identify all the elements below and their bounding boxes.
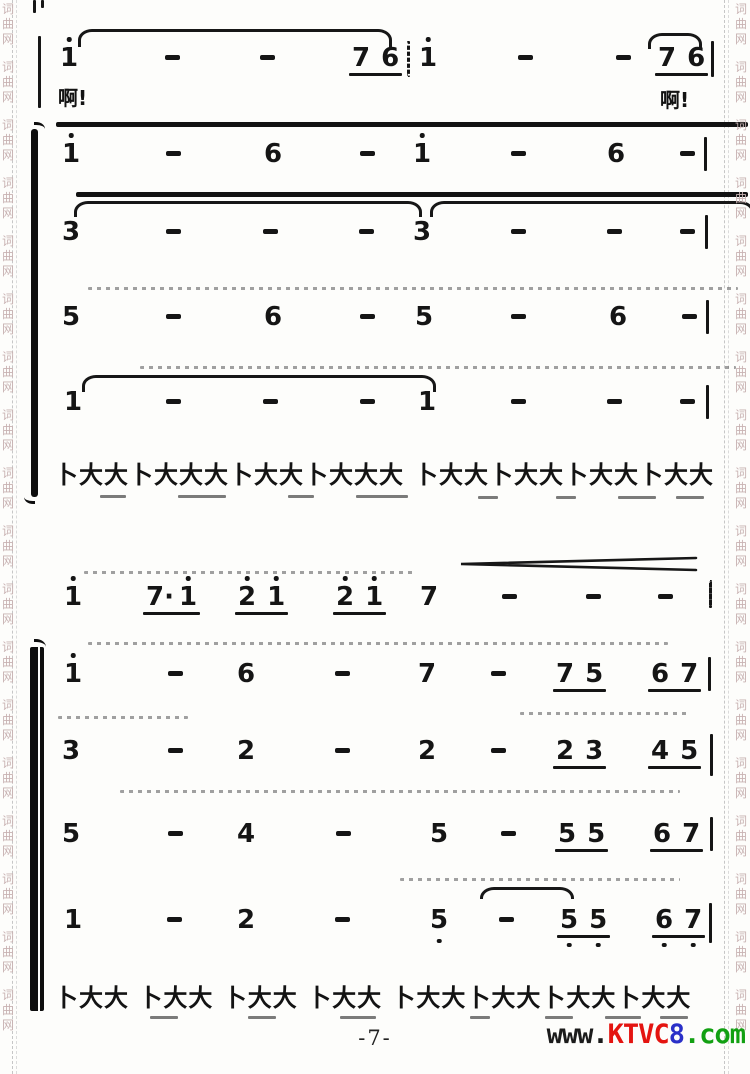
low-octave-dot bbox=[662, 943, 667, 948]
beam-underline bbox=[557, 935, 610, 938]
watermark-group: 词曲网 bbox=[734, 292, 748, 337]
watermark-group: 词曲网 bbox=[1, 60, 15, 105]
watermark-group: 词曲网 bbox=[1, 234, 15, 279]
extension-dash bbox=[680, 399, 695, 404]
extension-dash bbox=[511, 399, 526, 404]
extension-dash bbox=[260, 55, 275, 60]
barline bbox=[711, 41, 714, 77]
high-octave-dot bbox=[372, 576, 377, 581]
site-logo-segment: KTVC bbox=[608, 1019, 669, 1050]
watermark-group: 词曲网 bbox=[734, 524, 748, 569]
note-digit: 6 bbox=[264, 140, 282, 168]
note-group: 76 bbox=[352, 44, 399, 72]
extension-dash bbox=[263, 229, 278, 234]
note-group: 55 bbox=[558, 820, 605, 848]
extension-dash bbox=[511, 229, 526, 234]
extension-dash bbox=[168, 671, 183, 676]
extension-dash bbox=[518, 55, 533, 60]
extension-dash bbox=[263, 399, 278, 404]
notation-row-s2-v4: 1255567 bbox=[0, 906, 750, 936]
high-octave-dot bbox=[67, 37, 72, 42]
watermark-group: 词曲网 bbox=[734, 698, 748, 743]
extension-dash bbox=[499, 917, 514, 922]
extension-dash bbox=[491, 748, 506, 753]
note-digit: 5 bbox=[62, 303, 80, 331]
notation-row-s1-v2: 33 bbox=[0, 218, 750, 248]
watermark-column: 词曲网词曲网词曲网词曲网词曲网词曲网词曲网词曲网词曲网词曲网词曲网词曲网词曲网词… bbox=[1, 2, 15, 1046]
note-digit: 5 bbox=[430, 906, 448, 934]
extension-dash bbox=[167, 917, 182, 922]
note-digit: 4 bbox=[237, 820, 255, 848]
beam-underline bbox=[655, 73, 708, 76]
lyric-underline-dash bbox=[340, 1016, 376, 1019]
watermark-group: 词曲网 bbox=[734, 872, 748, 917]
note-group: 67 bbox=[653, 820, 700, 848]
extension-dash bbox=[360, 399, 375, 404]
high-octave-dot bbox=[69, 133, 74, 138]
watermark-group: 词曲网 bbox=[1, 524, 15, 569]
watermark-group: 词曲网 bbox=[1, 350, 15, 395]
watermark-group: 词曲网 bbox=[1, 930, 15, 975]
tie-line bbox=[76, 192, 748, 197]
lyric-underline-dash bbox=[150, 1016, 178, 1019]
extension-dash bbox=[586, 594, 601, 599]
note-digit: 3 bbox=[413, 218, 431, 246]
extension-dash bbox=[335, 671, 350, 676]
note-digit: 1 bbox=[64, 583, 82, 611]
watermark-group: 词曲网 bbox=[734, 118, 748, 163]
watermark-group: 词曲网 bbox=[1, 698, 15, 743]
extension-dash bbox=[165, 55, 180, 60]
note-digit: 6 bbox=[609, 303, 627, 331]
note-group: 21 bbox=[238, 583, 285, 611]
lyric-underline-dash bbox=[100, 495, 126, 498]
high-octave-dot bbox=[420, 133, 425, 138]
extension-dash bbox=[616, 55, 631, 60]
barline bbox=[706, 385, 709, 419]
note-digit: 6 bbox=[607, 140, 625, 168]
lyric-underline-dash bbox=[248, 1016, 276, 1019]
note-digit: 1 bbox=[64, 388, 82, 416]
lyric-underline-dash bbox=[470, 1016, 490, 1019]
scan-noise-line bbox=[58, 716, 188, 719]
note-digit: 5 bbox=[62, 820, 80, 848]
low-octave-dot bbox=[567, 943, 572, 948]
barline bbox=[708, 657, 711, 691]
barline bbox=[709, 580, 712, 608]
system-brace bbox=[31, 129, 38, 497]
tie-line bbox=[56, 122, 748, 127]
high-octave-dot bbox=[186, 576, 191, 581]
extension-dash bbox=[680, 229, 695, 234]
beam-underline bbox=[553, 766, 606, 769]
extension-dash bbox=[501, 831, 516, 836]
lyric-underline-dash bbox=[618, 496, 656, 499]
extension-dash bbox=[682, 314, 697, 319]
slur-tie bbox=[648, 33, 702, 49]
high-octave-dot bbox=[71, 653, 76, 658]
beam-underline bbox=[143, 612, 200, 615]
note-digit: 1 bbox=[64, 906, 82, 934]
note-digit: 6 bbox=[264, 303, 282, 331]
site-logo-segment: www. bbox=[547, 1019, 608, 1050]
note-group: 21 bbox=[336, 583, 383, 611]
lyric-row1-part1: 卜大大卜大大大卜大大卜大大大 bbox=[54, 462, 404, 488]
extension-dash bbox=[168, 748, 183, 753]
watermark-group: 词曲网 bbox=[1, 118, 15, 163]
scan-noise-line bbox=[120, 790, 680, 793]
notation-row-mid-voice: 17·121217 bbox=[0, 583, 750, 613]
extension-dash bbox=[166, 151, 181, 156]
extension-dash bbox=[360, 314, 375, 319]
note-group: 7·1 bbox=[146, 583, 197, 611]
extension-dash bbox=[168, 831, 183, 836]
note-digit: 3 bbox=[62, 218, 80, 246]
lyric-underline-dash bbox=[676, 496, 704, 499]
system-brace bbox=[30, 647, 44, 1011]
watermark-group: 词曲网 bbox=[1, 176, 15, 221]
extension-dash bbox=[680, 151, 695, 156]
extension-dash bbox=[166, 314, 181, 319]
barline bbox=[38, 36, 41, 108]
beam-underline bbox=[648, 766, 701, 769]
note-digit: 1 bbox=[62, 140, 80, 168]
barline bbox=[407, 41, 410, 77]
extension-dash bbox=[607, 229, 622, 234]
slur-tie bbox=[82, 375, 436, 392]
lyric-ah-left: 啊! bbox=[58, 85, 87, 111]
watermark-column: 词曲网词曲网词曲网词曲网词曲网词曲网词曲网词曲网词曲网词曲网词曲网词曲网词曲网词… bbox=[734, 2, 748, 1046]
scan-noise-line bbox=[88, 642, 668, 645]
barline bbox=[41, 0, 44, 8]
extension-dash bbox=[607, 399, 622, 404]
note-digit: 2 bbox=[418, 737, 436, 765]
watermark-group: 词曲网 bbox=[734, 814, 748, 859]
watermark-group: 词曲网 bbox=[734, 60, 748, 105]
watermark-group: 词曲网 bbox=[1, 756, 15, 801]
note-digit: 2 bbox=[237, 737, 255, 765]
note-digit: 1 bbox=[413, 140, 431, 168]
extension-dash bbox=[166, 399, 181, 404]
notation-row-s1-v4: 11 bbox=[0, 388, 750, 418]
sheet-music-page: 17617616163356561117·1212171677567322234… bbox=[0, 0, 750, 1074]
barline bbox=[706, 300, 709, 334]
high-octave-dot bbox=[245, 576, 250, 581]
beam-underline bbox=[333, 612, 386, 615]
extension-dash bbox=[491, 671, 506, 676]
watermark-group: 词曲网 bbox=[734, 756, 748, 801]
notation-row-tail-voice: 176176 bbox=[0, 44, 750, 74]
lyric-underline-dash bbox=[288, 495, 314, 498]
watermark-group: 词曲网 bbox=[1, 872, 15, 917]
barline bbox=[710, 734, 713, 776]
lyric-row2: 卜大大 卜大大 卜大大 卜大大 卜大大卜大大卜大大卜大大 bbox=[54, 985, 691, 1011]
beam-underline bbox=[555, 849, 608, 852]
barline bbox=[704, 137, 707, 171]
notation-row-s1-v1: 1616 bbox=[0, 140, 750, 170]
barline bbox=[710, 817, 713, 851]
watermark-group: 词曲网 bbox=[1, 408, 15, 453]
notation-row-s2-v3: 5455567 bbox=[0, 820, 750, 850]
slur-tie bbox=[78, 29, 392, 47]
watermark-group: 词曲网 bbox=[734, 408, 748, 453]
lyric-row1-part2: 卜大大卜大大卜大大卜大大 bbox=[414, 462, 714, 488]
slur-tie bbox=[74, 201, 422, 217]
watermark-group: 词曲网 bbox=[1, 814, 15, 859]
watermark-group: 词曲网 bbox=[734, 350, 748, 395]
watermark-group: 词曲网 bbox=[1, 2, 15, 47]
note-digit: 7 bbox=[418, 660, 436, 688]
high-octave-dot bbox=[426, 37, 431, 42]
scan-noise-line bbox=[400, 878, 680, 881]
high-octave-dot bbox=[343, 576, 348, 581]
high-octave-dot bbox=[71, 576, 76, 581]
note-group: 23 bbox=[556, 737, 603, 765]
extension-dash bbox=[359, 229, 374, 234]
extension-dash bbox=[658, 594, 673, 599]
note-digit: 7 bbox=[420, 583, 438, 611]
extension-dash bbox=[336, 831, 351, 836]
watermark-group: 词曲网 bbox=[734, 2, 748, 47]
beam-underline bbox=[650, 849, 703, 852]
site-logo-segment: 8 bbox=[669, 1019, 684, 1050]
note-digit: 3 bbox=[62, 737, 80, 765]
site-logo: www.KTVC8.com bbox=[547, 1020, 745, 1050]
scan-noise-line bbox=[84, 571, 414, 574]
note-digit: 1 bbox=[60, 44, 78, 72]
lyric-underline-dash bbox=[178, 495, 226, 498]
note-group: 75 bbox=[556, 660, 603, 688]
note-digit: 2 bbox=[237, 906, 255, 934]
watermark-group: 词曲网 bbox=[1, 292, 15, 337]
slur-tie bbox=[480, 887, 574, 899]
notation-row-s2-v1: 1677567 bbox=[0, 660, 750, 690]
barline bbox=[705, 215, 708, 249]
watermark-group: 词曲网 bbox=[1, 640, 15, 685]
barline bbox=[709, 903, 712, 943]
extension-dash bbox=[511, 151, 526, 156]
lyric-underline-dash bbox=[356, 495, 408, 498]
watermark-group: 词曲网 bbox=[734, 582, 748, 627]
extension-dash bbox=[335, 748, 350, 753]
extension-dash bbox=[511, 314, 526, 319]
scan-noise-line bbox=[88, 287, 738, 290]
extension-dash bbox=[335, 917, 350, 922]
note-group: 55 bbox=[560, 906, 607, 934]
crescendo-hairpin bbox=[458, 555, 698, 577]
scan-noise-line bbox=[520, 712, 690, 715]
note-digit: 1 bbox=[419, 44, 437, 72]
note-digit: 5 bbox=[415, 303, 433, 331]
watermark-group: 词曲网 bbox=[734, 466, 748, 511]
barline bbox=[33, 0, 36, 13]
note-digit: 5 bbox=[430, 820, 448, 848]
note-group: 67 bbox=[655, 906, 702, 934]
low-octave-dot bbox=[691, 943, 696, 948]
lyric-underline-dash bbox=[556, 496, 576, 499]
extension-dash bbox=[166, 229, 181, 234]
beam-underline bbox=[648, 689, 701, 692]
low-octave-dot bbox=[437, 939, 442, 944]
note-group: 45 bbox=[651, 737, 698, 765]
high-octave-dot bbox=[274, 576, 279, 581]
lyric-ah-right: 啊! bbox=[660, 87, 689, 113]
watermark-group: 词曲网 bbox=[734, 176, 748, 221]
scan-noise-line bbox=[140, 366, 736, 369]
beam-underline bbox=[652, 935, 705, 938]
notation-area: 17617616163356561117·1212171677567322234… bbox=[0, 0, 750, 1074]
watermark-group: 词曲网 bbox=[734, 234, 748, 279]
page-number: -7- bbox=[358, 1026, 392, 1050]
notation-row-s1-v3: 5656 bbox=[0, 303, 750, 333]
beam-underline bbox=[553, 689, 606, 692]
note-digit: 1 bbox=[418, 388, 436, 416]
low-octave-dot bbox=[596, 943, 601, 948]
note-digit: 1 bbox=[64, 660, 82, 688]
note-group: 67 bbox=[651, 660, 698, 688]
extension-dash bbox=[360, 151, 375, 156]
beam-underline bbox=[235, 612, 288, 615]
watermark-group: 词曲网 bbox=[1, 988, 15, 1033]
watermark-group: 词曲网 bbox=[1, 582, 15, 627]
slur-tie bbox=[430, 201, 750, 217]
watermark-group: 词曲网 bbox=[734, 930, 748, 975]
site-logo-segment: .com bbox=[684, 1019, 745, 1050]
note-digit: 6 bbox=[237, 660, 255, 688]
extension-dash bbox=[502, 594, 517, 599]
lyric-underline-dash bbox=[478, 496, 498, 499]
watermark-group: 词曲网 bbox=[734, 640, 748, 685]
notation-row-s2-v2: 3222345 bbox=[0, 737, 750, 767]
beam-underline bbox=[349, 73, 402, 76]
watermark-group: 词曲网 bbox=[1, 466, 15, 511]
